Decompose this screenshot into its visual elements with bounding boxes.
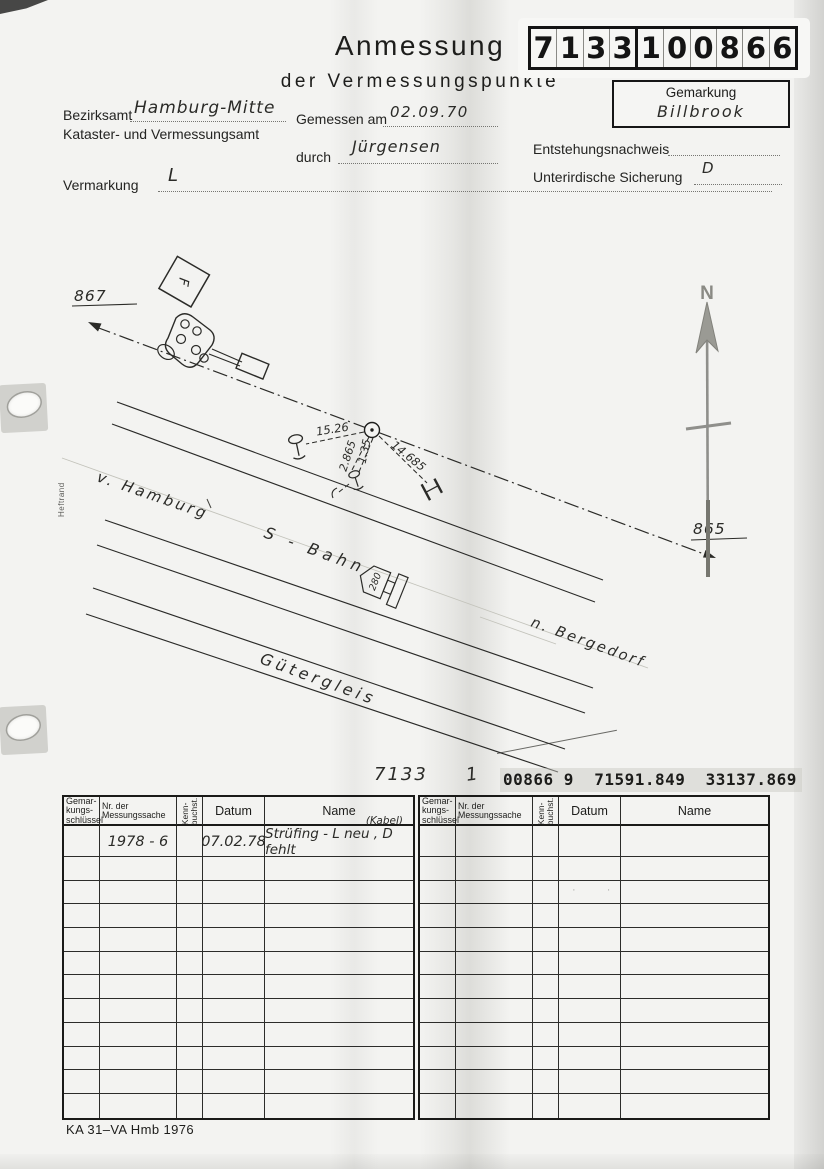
label-s-bahn: S - Bahn bbox=[262, 523, 369, 578]
table-row bbox=[420, 928, 768, 952]
label-v-hamburg: v. Hamburg bbox=[95, 468, 211, 523]
table-cell bbox=[420, 1047, 456, 1070]
table-cell bbox=[265, 1023, 413, 1046]
table-row bbox=[64, 1047, 413, 1071]
table-row bbox=[420, 975, 768, 999]
table-cell bbox=[621, 952, 768, 975]
table-cell bbox=[64, 928, 100, 951]
table-cell bbox=[621, 881, 768, 904]
north-label: N bbox=[700, 283, 714, 304]
table-cell bbox=[420, 857, 456, 880]
label-n-bergedorf: n. Bergedorf bbox=[529, 615, 648, 671]
label-guetergleis: Gütergleis bbox=[258, 649, 380, 709]
table-cell bbox=[533, 826, 559, 856]
cell-annotation: (Kabel) bbox=[366, 815, 403, 827]
column-header: Nr. derMessungssache bbox=[100, 797, 177, 825]
arrowhead-left bbox=[88, 322, 102, 332]
column-header: Datum bbox=[559, 797, 621, 825]
point-number-867: 867 bbox=[74, 287, 107, 305]
table-cell bbox=[533, 881, 559, 904]
table-cell bbox=[203, 1070, 265, 1093]
table-cell bbox=[203, 999, 265, 1022]
table-cell bbox=[533, 1047, 559, 1070]
table-cell bbox=[456, 928, 533, 951]
j-tick-mark bbox=[332, 488, 337, 498]
table-cell bbox=[621, 1070, 768, 1093]
table-cell bbox=[203, 904, 265, 927]
table-cell bbox=[420, 881, 456, 904]
table-cell bbox=[456, 1023, 533, 1046]
table-cell bbox=[203, 1094, 265, 1118]
table-cell bbox=[203, 928, 265, 951]
typed-point-coordinates: 00866 9 71591.849 33137.869 bbox=[503, 770, 797, 789]
table-cell bbox=[265, 881, 413, 904]
table-cell bbox=[420, 826, 456, 856]
table-cell bbox=[621, 975, 768, 998]
table-row bbox=[420, 1094, 768, 1118]
table-cell bbox=[265, 928, 413, 951]
table-cell bbox=[64, 857, 100, 880]
table-cell bbox=[64, 975, 100, 998]
table-cell bbox=[203, 975, 265, 998]
table-cell bbox=[100, 1094, 177, 1118]
scanned-survey-form: Heftrand · · Anmessung der Vermessungspu… bbox=[0, 0, 824, 1169]
measurement-log-table-right: Gemar-kungs-schlüsselNr. derMessungssach… bbox=[418, 795, 770, 1120]
table-row bbox=[420, 1047, 768, 1071]
table-cell bbox=[177, 826, 203, 858]
table-cell bbox=[177, 904, 203, 927]
measurement-log-table-left: Gemar-kungs-schlüsselNr. derMessungssach… bbox=[62, 795, 415, 1120]
table-cell bbox=[64, 952, 100, 975]
table-cell bbox=[420, 975, 456, 998]
table-cell bbox=[456, 999, 533, 1022]
measurement-2-865: 2.865 bbox=[337, 439, 359, 473]
table-row bbox=[64, 999, 413, 1023]
table-row bbox=[64, 904, 413, 928]
table-cell bbox=[64, 881, 100, 904]
table-cell bbox=[177, 952, 203, 975]
table-row bbox=[420, 826, 768, 857]
table-row bbox=[420, 1070, 768, 1094]
table-cell bbox=[100, 952, 177, 975]
table-cell bbox=[621, 928, 768, 951]
table-cell bbox=[177, 1023, 203, 1046]
table-cell bbox=[64, 1070, 100, 1093]
table-cell bbox=[64, 999, 100, 1022]
table-cell bbox=[64, 826, 100, 858]
table-cell bbox=[420, 928, 456, 951]
table-cell bbox=[177, 1094, 203, 1118]
table-cell bbox=[177, 857, 203, 880]
table-cell bbox=[420, 1023, 456, 1046]
table-row: 1978 - 607.02.78Strüfing - L neu , D feh… bbox=[64, 826, 413, 857]
table-row bbox=[64, 928, 413, 952]
table-row bbox=[420, 857, 768, 881]
table-cell bbox=[559, 928, 621, 951]
table-cell bbox=[203, 1023, 265, 1046]
table-cell bbox=[559, 952, 621, 975]
f-box-label: F bbox=[174, 276, 191, 288]
table-cell bbox=[177, 1070, 203, 1093]
table-cell bbox=[420, 904, 456, 927]
column-header: Name bbox=[621, 797, 768, 825]
rail-profile-symbol-left bbox=[288, 434, 307, 461]
index-handwritten: 1 bbox=[465, 763, 481, 786]
table-cell bbox=[559, 1023, 621, 1046]
table-cell bbox=[100, 857, 177, 880]
table-cell bbox=[456, 975, 533, 998]
sheet-number-handwritten: 7133 bbox=[374, 764, 428, 785]
survey-point bbox=[365, 423, 380, 438]
table-cell: 07.02.78 bbox=[203, 826, 265, 858]
table-cell bbox=[100, 975, 177, 998]
table-cell bbox=[559, 1094, 621, 1118]
table-row bbox=[64, 881, 413, 905]
table-cell bbox=[533, 999, 559, 1022]
table-cell bbox=[265, 999, 413, 1022]
table-cell bbox=[559, 826, 621, 856]
f-box-symbol: F bbox=[159, 256, 210, 307]
table-cell bbox=[265, 1047, 413, 1070]
table-cell bbox=[420, 952, 456, 975]
table-cell bbox=[559, 881, 621, 904]
table-row bbox=[64, 952, 413, 976]
table-cell bbox=[621, 999, 768, 1022]
table-cell bbox=[456, 1047, 533, 1070]
table-row bbox=[64, 1094, 413, 1118]
table-cell bbox=[265, 857, 413, 880]
table-cell bbox=[203, 952, 265, 975]
table-row bbox=[64, 857, 413, 881]
measurement-1-35: 1.35 bbox=[356, 438, 374, 465]
table-cell bbox=[265, 1070, 413, 1093]
table-row bbox=[420, 952, 768, 976]
table-cell bbox=[177, 881, 203, 904]
underline-865 bbox=[691, 538, 747, 540]
table-cell bbox=[265, 952, 413, 975]
table-cell bbox=[100, 881, 177, 904]
table-row bbox=[420, 904, 768, 928]
table-cell bbox=[559, 857, 621, 880]
table-cell bbox=[456, 904, 533, 927]
table-cell bbox=[203, 1047, 265, 1070]
table-cell bbox=[533, 857, 559, 880]
table-cell bbox=[100, 1023, 177, 1046]
column-header: Datum bbox=[203, 797, 265, 825]
table-cell bbox=[621, 826, 768, 856]
table-cell bbox=[64, 1094, 100, 1118]
table-cell bbox=[621, 1094, 768, 1118]
table-cell bbox=[533, 904, 559, 927]
table-cell bbox=[559, 1070, 621, 1093]
table-cell bbox=[621, 857, 768, 880]
table-cell bbox=[621, 904, 768, 927]
table-cell bbox=[533, 952, 559, 975]
table-cell bbox=[456, 881, 533, 904]
table-cell bbox=[559, 999, 621, 1022]
switch-mechanism-symbol bbox=[155, 314, 269, 379]
table-cell bbox=[533, 928, 559, 951]
table-cell bbox=[559, 1047, 621, 1070]
table-cell bbox=[559, 904, 621, 927]
table-cell bbox=[64, 1023, 100, 1046]
table-cell bbox=[177, 1047, 203, 1070]
table-cell bbox=[456, 1094, 533, 1118]
table-row bbox=[420, 881, 768, 905]
table-cell bbox=[420, 1094, 456, 1118]
table-row bbox=[64, 1023, 413, 1047]
table-cell bbox=[100, 999, 177, 1022]
table-cell bbox=[456, 826, 533, 856]
form-id: KA 31–VA Hmb 1976 bbox=[66, 1122, 194, 1137]
table-cell bbox=[621, 1047, 768, 1070]
table-cell bbox=[533, 1094, 559, 1118]
table-row bbox=[64, 1070, 413, 1094]
column-header: Kenn-buchst. bbox=[177, 797, 203, 825]
table-cell: 1978 - 6 bbox=[100, 826, 177, 858]
table-cell bbox=[621, 1023, 768, 1046]
table-cell bbox=[265, 975, 413, 998]
table-row bbox=[420, 999, 768, 1023]
table-cell bbox=[64, 904, 100, 927]
table-cell bbox=[456, 1070, 533, 1093]
table-cell bbox=[64, 1047, 100, 1070]
table-row bbox=[420, 1023, 768, 1047]
table-cell bbox=[177, 999, 203, 1022]
table-cell bbox=[100, 928, 177, 951]
table-cell bbox=[533, 1023, 559, 1046]
signal-number: 280 bbox=[367, 571, 384, 592]
table-cell bbox=[559, 975, 621, 998]
table-cell bbox=[265, 1094, 413, 1118]
table-cell bbox=[100, 1047, 177, 1070]
table-cell bbox=[177, 928, 203, 951]
table-cell: Strüfing - L neu , D fehlt(Kabel) bbox=[265, 826, 413, 858]
column-header: Kenn-buchst. bbox=[533, 797, 559, 825]
table-cell bbox=[177, 975, 203, 998]
table-cell bbox=[100, 904, 177, 927]
table-cell bbox=[533, 1070, 559, 1093]
table-cell bbox=[265, 904, 413, 927]
column-header: Gemar-kungs-schlüssel bbox=[64, 797, 100, 825]
table-cell bbox=[456, 857, 533, 880]
table-cell bbox=[456, 952, 533, 975]
table-cell bbox=[420, 999, 456, 1022]
column-header: Nr. derMessungssache bbox=[456, 797, 533, 825]
column-header: Gemar-kungs-schlüssel bbox=[420, 797, 456, 825]
table-cell bbox=[203, 881, 265, 904]
table-cell bbox=[420, 1070, 456, 1093]
table-row bbox=[64, 975, 413, 999]
table-cell bbox=[533, 975, 559, 998]
table-cell bbox=[100, 1070, 177, 1093]
table-cell bbox=[203, 857, 265, 880]
